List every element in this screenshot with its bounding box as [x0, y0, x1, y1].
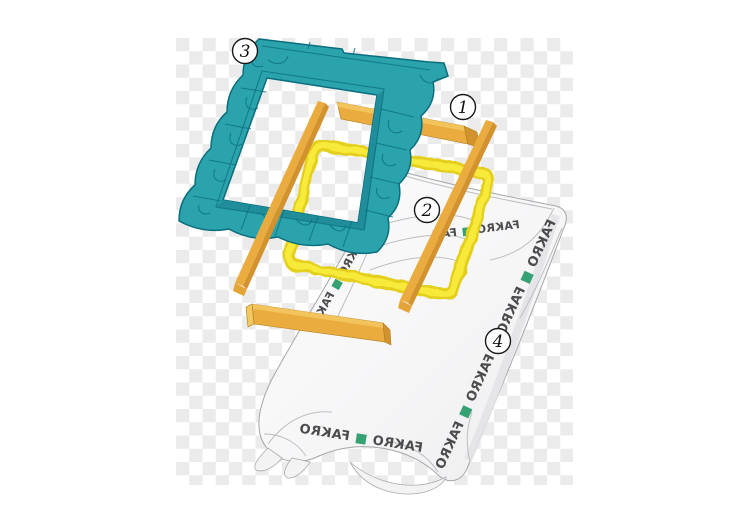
- callout-2-number: 2: [421, 201, 433, 221]
- callout-3: 3: [233, 39, 258, 64]
- diagram-canvas: FAKRO ■ FAKRO ■ FAKRO ■ FAKRO FAKRO ■ FA…: [0, 0, 750, 527]
- callout-1-number: 1: [458, 98, 469, 118]
- callout-4: 4: [486, 329, 511, 354]
- callout-3-number: 3: [240, 42, 251, 62]
- callout-4-number: 4: [492, 332, 504, 352]
- callout-2: 2: [415, 198, 440, 223]
- flashing-kit-exploded-diagram: FAKRO ■ FAKRO ■ FAKRO ■ FAKRO FAKRO ■ FA…: [0, 0, 750, 527]
- callout-1: 1: [451, 95, 476, 120]
